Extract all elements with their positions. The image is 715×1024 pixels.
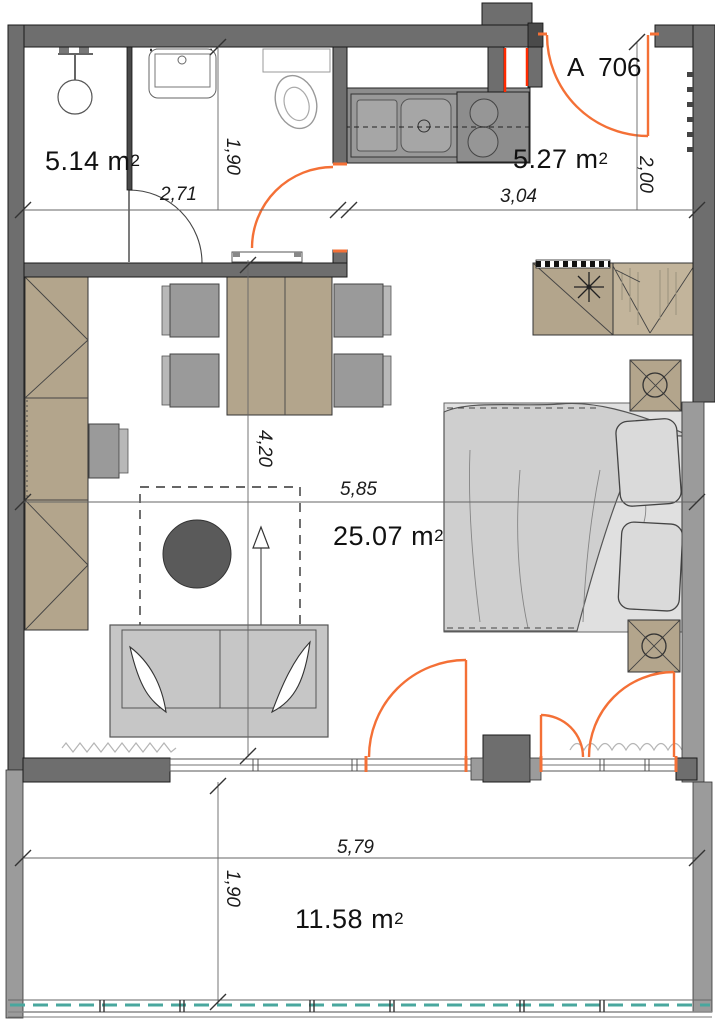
shower — [58, 47, 93, 114]
entrance-door — [538, 34, 659, 136]
washbasin — [149, 49, 216, 98]
window-sill — [23, 758, 170, 782]
nightstand — [630, 360, 681, 411]
dim-entry-depth: 2,00 — [636, 156, 655, 193]
dim-living-width: 5,85 — [340, 480, 377, 499]
floor-plan: A 706 5.14 m2 5.27 m2 25.07 m2 11.58 m2 … — [0, 0, 715, 1024]
wall-column — [482, 3, 532, 25]
dim-balcony-depth: 1,90 — [223, 870, 242, 907]
pillow — [615, 418, 682, 507]
balcony-door-left — [369, 660, 466, 757]
toilet — [263, 49, 330, 134]
wardrobe-right — [533, 260, 695, 335]
lamp-symbol — [574, 272, 604, 302]
sofa — [110, 625, 328, 737]
kitchen-counter — [345, 88, 530, 163]
coffee-table — [163, 520, 231, 588]
room-area-kitchen: 5.27 m2 — [513, 146, 608, 173]
bathroom-door — [252, 164, 347, 251]
room-area-living: 25.07 m2 — [333, 523, 444, 550]
wardrobe-left — [25, 277, 128, 630]
hallway-bench — [232, 252, 302, 262]
dim-living-depth: 4,20 — [255, 430, 274, 467]
dining-set — [162, 277, 391, 415]
room-area-bathroom: 5.14 m2 — [45, 148, 140, 175]
chair — [170, 354, 219, 407]
chair — [170, 284, 219, 337]
apartment-number: A 706 — [567, 54, 642, 80]
chair — [334, 284, 383, 337]
dining-table — [227, 277, 332, 415]
radiator-symbol — [62, 743, 176, 752]
windows — [170, 759, 676, 771]
kitchen-shaft — [528, 47, 542, 87]
chair — [334, 354, 383, 407]
curtain-symbol — [570, 744, 682, 751]
room-area-balcony: 11.58 m2 — [295, 906, 404, 933]
balcony-railing — [8, 1000, 712, 1017]
nightstand — [628, 620, 680, 672]
pillow — [618, 521, 683, 611]
dim-bath-width: 2,71 — [160, 185, 197, 204]
dim-balcony-width: 5,79 — [337, 838, 374, 857]
wall-pillar — [483, 735, 530, 782]
desk-chair — [89, 424, 119, 478]
kitchen-shaft — [488, 47, 504, 92]
dim-kitchen-width: 3,04 — [500, 187, 537, 206]
dim-bath-depth: 1,90 — [223, 138, 242, 175]
bed — [444, 403, 692, 632]
